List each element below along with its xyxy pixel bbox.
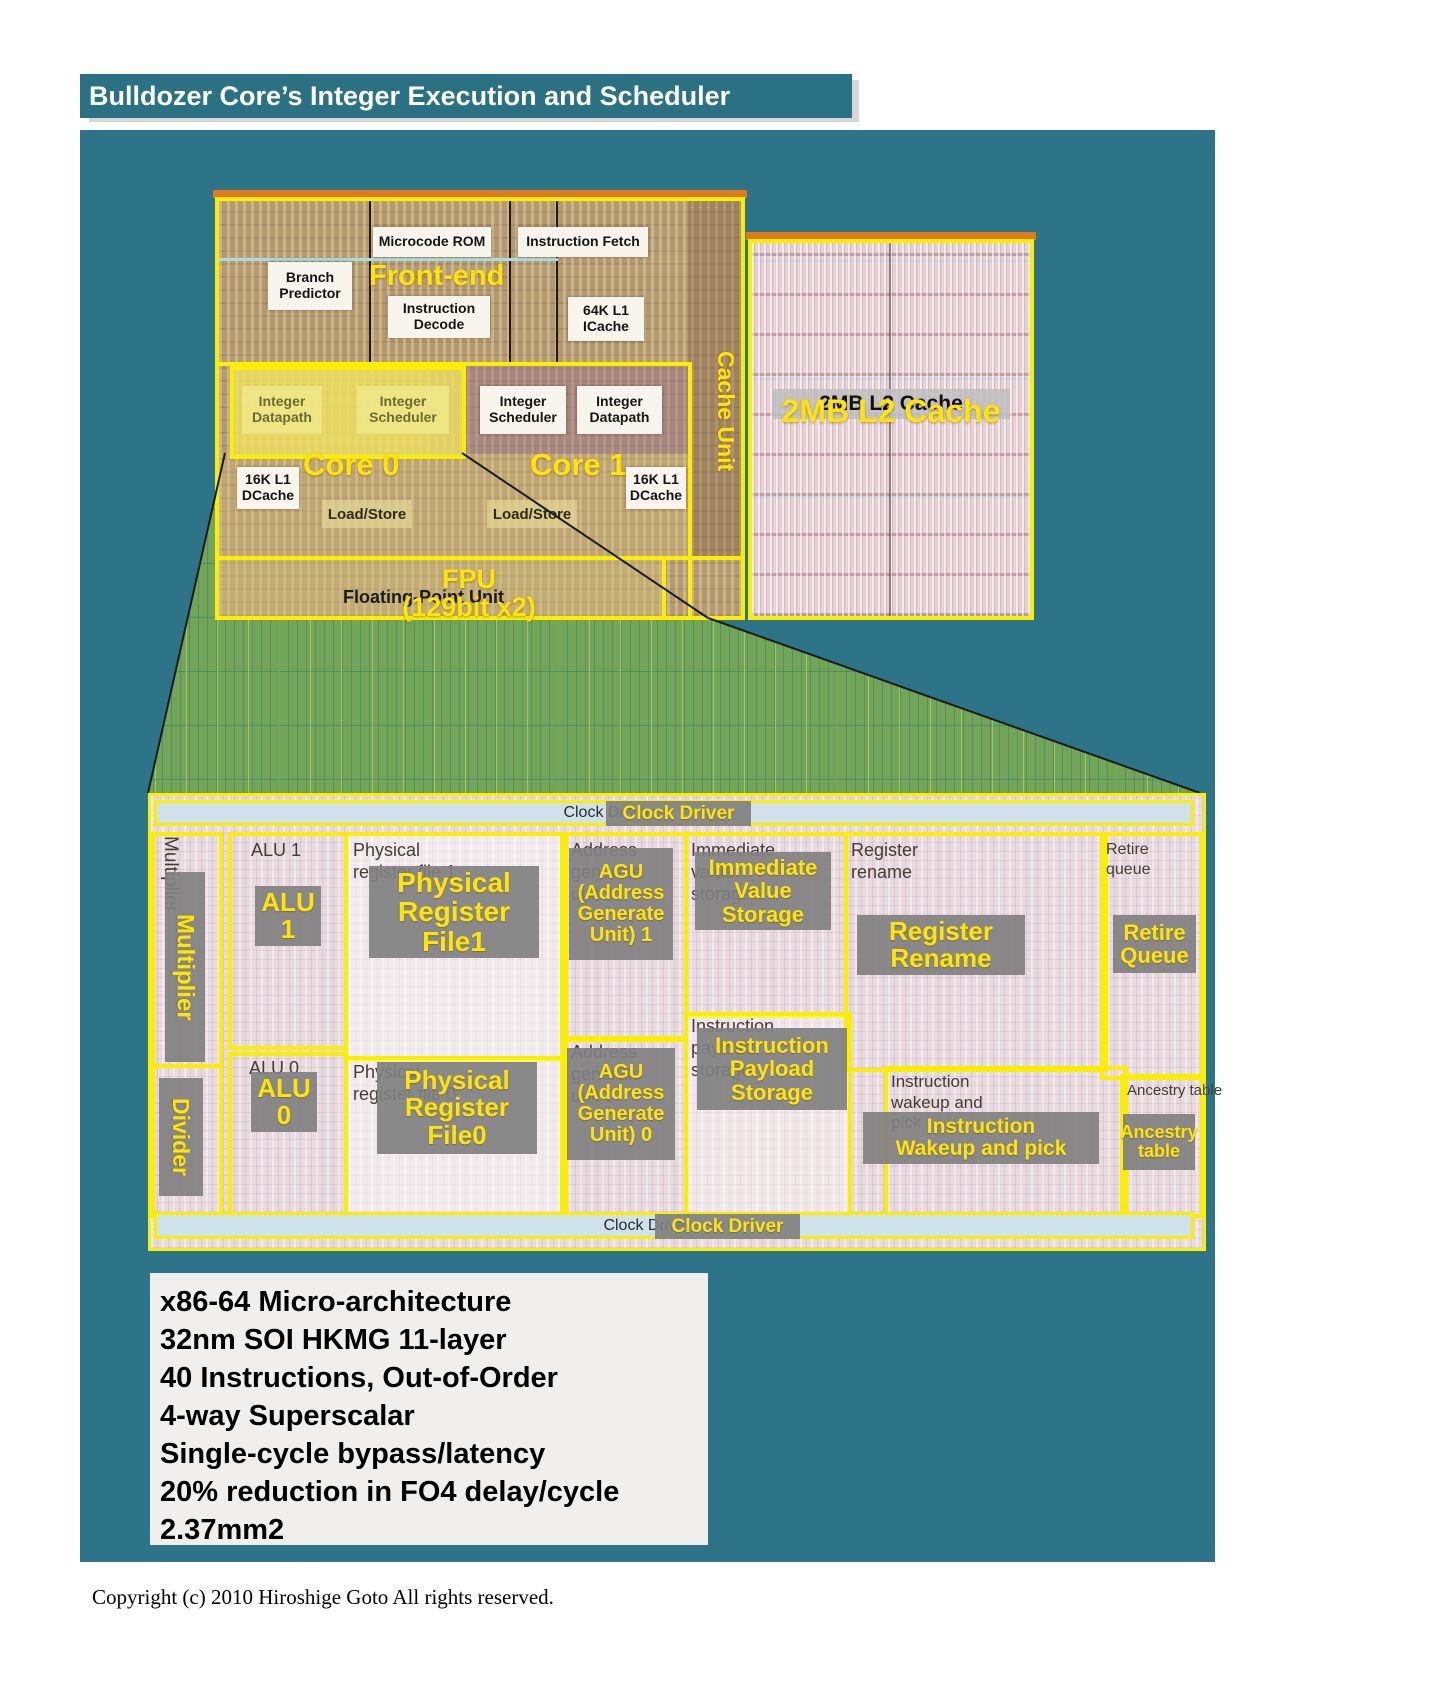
immediate-overlay-label: Immediate Value Storage <box>695 852 831 930</box>
core0-dcache-label: 16K L1 DCache <box>237 467 299 509</box>
prf1-overlay-label: Physical Register File1 <box>369 866 539 958</box>
retire-base-label: Retire queue <box>1106 840 1151 879</box>
copyright-notice: Copyright (c) 2010 Hiroshige Goto All ri… <box>92 1585 554 1610</box>
spec-box: x86-64 Micro-architecture 32nm SOI HKMG … <box>150 1273 708 1545</box>
prf0-overlay-label: Physical Register File0 <box>377 1062 537 1154</box>
alu0-overlay-label: ALU 0 <box>251 1072 317 1132</box>
agu1-overlay-label: AGU (Address Generate Unit) 1 <box>569 848 673 960</box>
instruction-decode-label: Instruction Decode <box>388 296 490 338</box>
rename-overlay-label: Register Rename <box>857 915 1025 975</box>
instruction-fetch-label: Instruction Fetch <box>518 227 648 257</box>
clock-driver-bottom-overlay-label: Clock Driver <box>655 1214 800 1239</box>
core0-overlay-label: Core 0 <box>303 449 399 481</box>
wakeup-overlay-label: Instruction Wakeup and pick <box>863 1112 1099 1164</box>
l2-overlay-label: 2MB L2 Cache <box>752 395 1030 435</box>
alu1-overlay-label: ALU 1 <box>255 886 321 946</box>
slide: Bulldozer Core’s Integer Execution and S… <box>0 0 1447 1698</box>
front-end-overlay-label: Front-end <box>369 261 504 291</box>
cache-unit-overlay-label: Cache Unit <box>693 351 737 601</box>
retire-overlay-label: Retire Queue <box>1113 915 1196 973</box>
core1-integer-datapath-label: Integer Datapath <box>577 386 662 434</box>
ancestry-overlay-label: Ancestry table <box>1123 1114 1195 1170</box>
clock-driver-bottom-base-label: Clock Driver <box>157 1217 1137 1235</box>
payload-overlay-label: Instruction Payload Storage <box>697 1028 847 1110</box>
core1-load-store-label: Load/Store <box>487 500 577 528</box>
page-title: Bulldozer Core’s Integer Execution and S… <box>80 74 852 118</box>
divider-overlay-label: Divider <box>159 1078 203 1196</box>
integer-cluster-zoom-panel: Clock Driver Clock Driver Multiplier ALU… <box>148 793 1206 1251</box>
die-core-module: Microcode ROM Instruction Fetch Branch P… <box>215 197 745 620</box>
core1-dcache-label: 16K L1 DCache <box>626 467 686 509</box>
core0-integer-scheduler-label: Integer Scheduler <box>357 386 449 434</box>
microcode-rom-label: Microcode ROM <box>373 227 491 257</box>
spec-line: 40 Instructions, Out-of-Order <box>150 1359 708 1397</box>
branch-predictor-label: Branch Predictor <box>268 262 352 310</box>
l2-cache-block: 2MB L2 Cache 2MB L2 Cache <box>748 239 1034 620</box>
section-border <box>662 560 666 616</box>
multiplier-overlay-label: Multiplier <box>165 872 205 1062</box>
core1-integer-scheduler-label: Integer Scheduler <box>480 386 566 434</box>
spec-line: x86-64 Micro-architecture <box>150 1273 708 1321</box>
spec-line: 32nm SOI HKMG 11-layer <box>150 1321 708 1359</box>
spec-line: 2.37mm2 <box>150 1511 708 1549</box>
ancestry-base-label: Ancestry table <box>1127 1082 1222 1100</box>
core0-load-store-label: Load/Store <box>322 500 412 528</box>
divider-line <box>509 201 511 362</box>
spec-line: Single-cycle bypass/latency <box>150 1435 708 1473</box>
alu1-base-label: ALU 1 <box>251 840 301 862</box>
core0-integer-datapath-label: Integer Datapath <box>242 386 322 434</box>
title-bar: Bulldozer Core’s Integer Execution and S… <box>80 74 852 118</box>
rename-base-label: Register rename <box>851 840 918 884</box>
spec-line: 20% reduction in FO4 delay/cycle <box>150 1473 708 1511</box>
spec-line: 4-way Superscalar <box>150 1397 708 1435</box>
agu0-overlay-label: AGU (Address Generate Unit) 0 <box>567 1048 675 1160</box>
clock-driver-top-overlay-label: Clock Driver <box>606 801 751 826</box>
core1-overlay-label: Core 1 <box>530 449 626 481</box>
section-border <box>688 362 692 616</box>
divider-line <box>556 201 558 362</box>
l1-icache-label: 64K L1 ICache <box>568 297 644 341</box>
fpu-overlay-label: FPU (129bit x2) <box>359 565 579 619</box>
